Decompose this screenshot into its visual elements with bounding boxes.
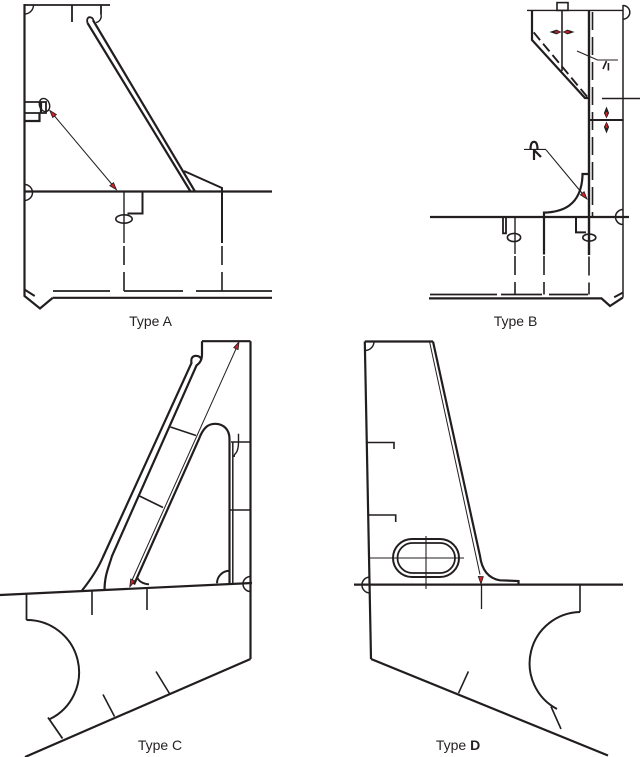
svg-text:Type C: Type C [138,737,182,753]
svg-text:Type B: Type B [494,313,538,329]
svg-text:Type A: Type A [129,313,172,329]
svg-text:Type D: Type D [436,737,480,753]
